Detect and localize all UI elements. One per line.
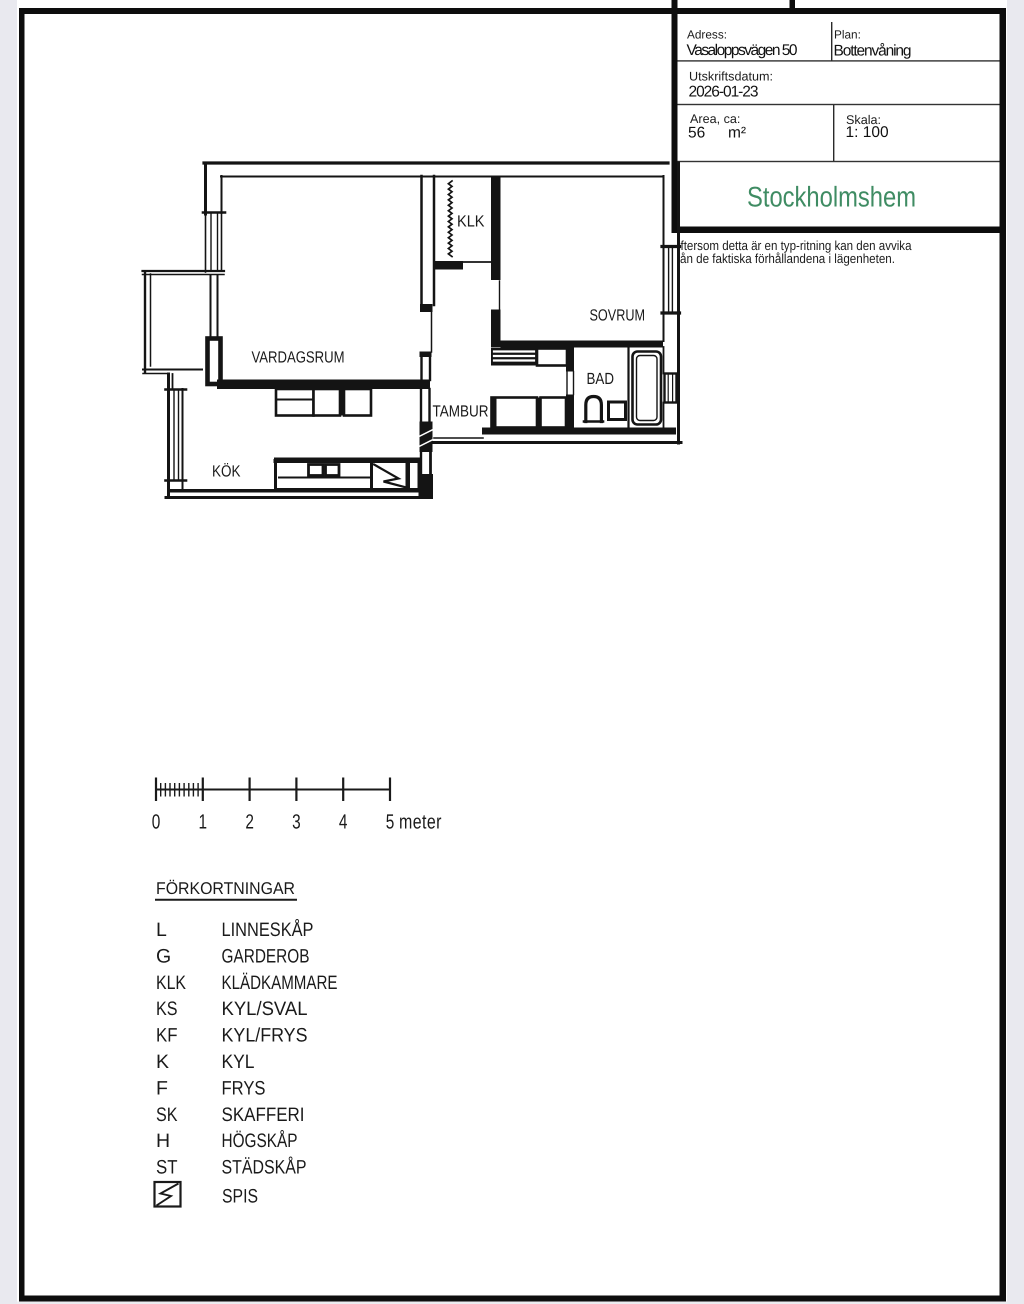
svg-text:HÖGSKÅP: HÖGSKÅP (222, 1129, 298, 1152)
svg-text:GARDEROB: GARDEROB (222, 945, 310, 967)
svg-text:1: 100: 1: 100 (846, 124, 889, 141)
svg-text:KF: KF (156, 1025, 178, 1047)
svg-text:KLK: KLK (156, 972, 186, 994)
svg-text:STÄDSKÅP: STÄDSKÅP (222, 1156, 307, 1179)
svg-text:K: K (156, 1051, 169, 1073)
svg-text:LINNESKÅP: LINNESKÅP (222, 918, 314, 941)
svg-text:ån de faktiska förhållandena i: ån de faktiska förhållandena i lägenhete… (680, 251, 895, 266)
svg-text:BAD: BAD (587, 370, 615, 388)
svg-text:56: 56 (688, 125, 705, 142)
svg-text:2026-01-23: 2026-01-23 (689, 84, 759, 101)
svg-text:KLÄDKAMMARE: KLÄDKAMMARE (222, 972, 338, 994)
svg-text:Vasaloppsvägen 50: Vasaloppsvägen 50 (687, 42, 798, 59)
svg-text:meter: meter (399, 811, 442, 834)
svg-text:ST: ST (156, 1157, 178, 1179)
svg-text:Bottenvåning: Bottenvåning (834, 43, 912, 60)
svg-text:m²: m² (728, 125, 746, 142)
svg-text:KYL/FRYS: KYL/FRYS (222, 1025, 308, 1047)
svg-text:VARDAGSRUM: VARDAGSRUM (252, 349, 345, 367)
svg-text:SKAFFERI: SKAFFERI (222, 1104, 305, 1126)
svg-text:Adress:: Adress: (687, 28, 727, 42)
svg-text:1: 1 (199, 811, 208, 834)
svg-text:KÖK: KÖK (212, 463, 241, 481)
svg-text:G: G (156, 945, 171, 967)
svg-text:Stockholmshem: Stockholmshem (747, 182, 916, 214)
svg-text:Plan:: Plan: (834, 28, 861, 42)
svg-text:KS: KS (156, 998, 178, 1020)
svg-text:3: 3 (292, 811, 301, 834)
svg-text:Utskriftsdatum:: Utskriftsdatum: (689, 70, 773, 84)
svg-text:4: 4 (339, 811, 348, 834)
svg-text:0: 0 (152, 811, 161, 834)
svg-text:2: 2 (245, 811, 254, 834)
svg-text:L: L (156, 919, 167, 941)
svg-text:5: 5 (386, 811, 395, 834)
svg-text:KYL: KYL (222, 1051, 255, 1073)
svg-text:FÖRKORTNINGAR: FÖRKORTNINGAR (156, 879, 295, 898)
svg-text:F: F (156, 1077, 168, 1099)
svg-text:KLK: KLK (457, 213, 485, 231)
svg-text:H: H (156, 1130, 170, 1152)
svg-text:TAMBUR: TAMBUR (433, 403, 489, 421)
svg-text:KYL/SVAL: KYL/SVAL (222, 998, 308, 1020)
svg-text:SOVRUM: SOVRUM (590, 307, 646, 325)
svg-text:SPIS: SPIS (222, 1186, 258, 1208)
svg-text:SK: SK (156, 1104, 178, 1126)
svg-text:FRYS: FRYS (222, 1077, 266, 1099)
